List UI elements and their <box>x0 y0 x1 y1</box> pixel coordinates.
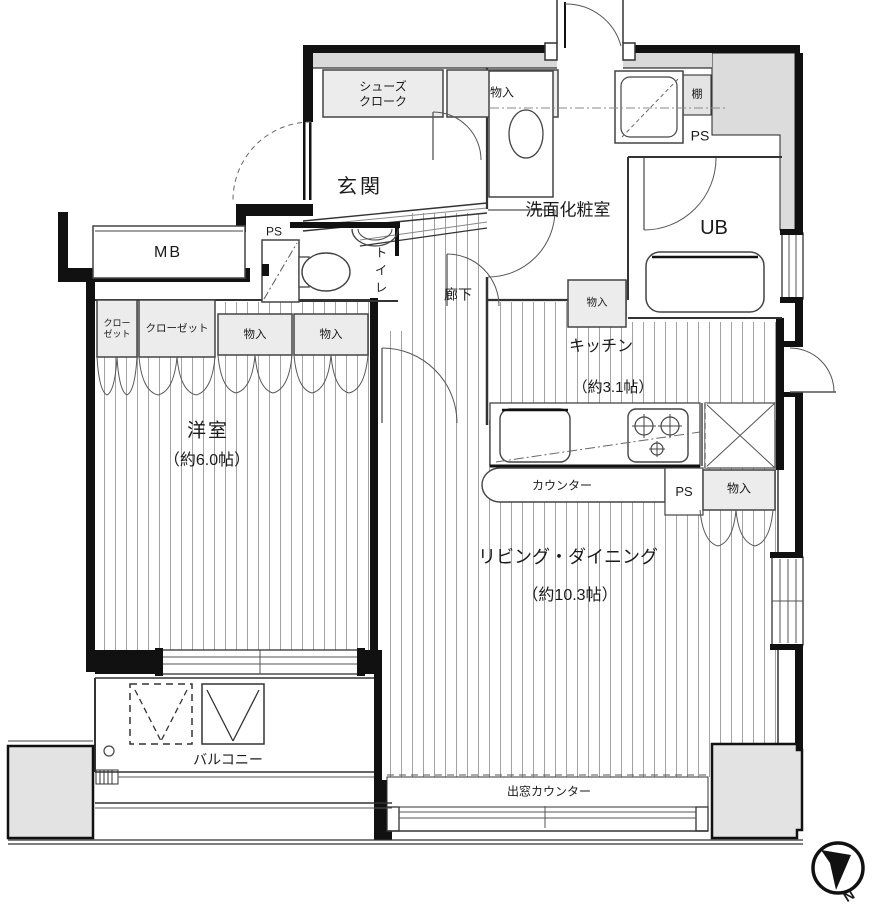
kitchen-counter <box>482 403 775 515</box>
bay-window-counter-label: 出窓カウンター <box>507 785 591 800</box>
kitchen-label: キッチン <box>569 337 633 357</box>
closet-label: クローゼット <box>146 323 209 336</box>
balcony-label: バルコニー <box>193 751 263 768</box>
washroom-label: 洗面化粧室 <box>526 201 611 222</box>
counter-label: カウンター <box>532 479 592 494</box>
ps-top-label: PS <box>691 127 710 144</box>
ps-toilet-label: PS <box>266 225 282 240</box>
floor-plan: シューズクローク 物入 玄関 洗面化粧室 棚 PS UB MB PS トイレ 廊… <box>0 0 891 914</box>
floor-plan-drawing <box>0 0 891 914</box>
kitchen-size-label: （約3.1帖） <box>573 379 654 397</box>
compass <box>813 843 863 893</box>
living-size-label: （約10.3帖） <box>522 586 617 606</box>
western-size-label: （約6.0帖） <box>164 451 250 471</box>
shoes-cloak-label: シューズクローク <box>354 79 412 108</box>
storage-2-label: 物入 <box>320 328 343 342</box>
closet-small-label: クローゼット <box>101 318 134 340</box>
entrance-label: 玄関 <box>337 175 383 199</box>
ps-kitchen-label: PS <box>675 484 692 500</box>
shelf-label: 棚 <box>692 88 703 101</box>
living-dining-label: リビング・ダイニング <box>478 547 658 569</box>
storage-1-label: 物入 <box>244 328 267 342</box>
unit-bath-label: UB <box>700 216 728 240</box>
corridor-label: 廊下 <box>444 286 472 303</box>
storage-living-label: 物入 <box>727 482 751 497</box>
toilet-label: トイレ <box>371 246 386 299</box>
storage-top-label: 物入 <box>490 86 514 101</box>
western-room-label: 洋室 <box>187 419 229 442</box>
meter-box-label: MB <box>154 243 182 263</box>
storage-kitchen-label: 物入 <box>587 297 608 310</box>
